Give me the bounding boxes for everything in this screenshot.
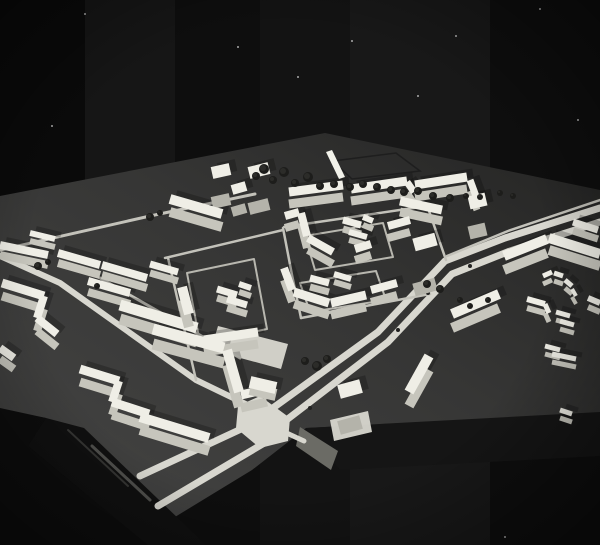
- architectural-model-photo: [0, 0, 600, 545]
- vignette: [0, 0, 600, 545]
- scene-svg: [0, 0, 600, 545]
